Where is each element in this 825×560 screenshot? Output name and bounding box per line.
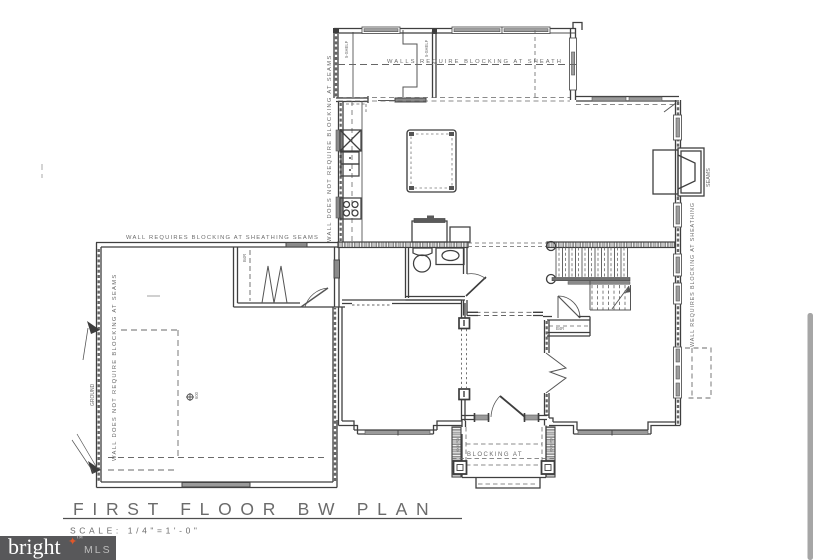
svg-text:6X6 PO: 6X6 PO <box>549 438 554 452</box>
svg-text:SCALE: 1/4"=1'-0": SCALE: 1/4"=1'-0" <box>70 526 201 536</box>
svg-text:B4R: B4R <box>556 326 564 331</box>
svg-text:WALL REQUIRES BLOCKING AT SHEA: WALL REQUIRES BLOCKING AT SHEATHING SEAM… <box>126 235 319 241</box>
svg-text:5-SHELF: 5-SHELF <box>344 40 349 58</box>
svg-text:WALL DOES NOT REQUIRE BLOCKING: WALL DOES NOT REQUIRE BLOCKING AT SEAMS <box>112 274 118 462</box>
svg-text:6X6 PO: 6X6 PO <box>455 438 460 452</box>
svg-text:GROUND: GROUND <box>90 383 96 406</box>
svg-text:WALL REQUIRES BLOCKING AT SHEA: WALL REQUIRES BLOCKING AT SHEATHING <box>690 202 696 347</box>
svg-text:WALL DOES NOT REQUIRE BLOCKING: WALL DOES NOT REQUIRE BLOCKING AT SEAMS <box>327 55 333 243</box>
svg-text:B4R: B4R <box>242 254 247 262</box>
svg-text:600: 600 <box>194 391 199 399</box>
svg-text:BLOCKING AT: BLOCKING AT <box>467 452 523 458</box>
svg-text:5-SHELF: 5-SHELF <box>424 39 429 57</box>
svg-text:SEAMS: SEAMS <box>706 168 712 187</box>
svg-text:FIRST FLOOR BW PLAN: FIRST FLOOR BW PLAN <box>73 499 437 519</box>
